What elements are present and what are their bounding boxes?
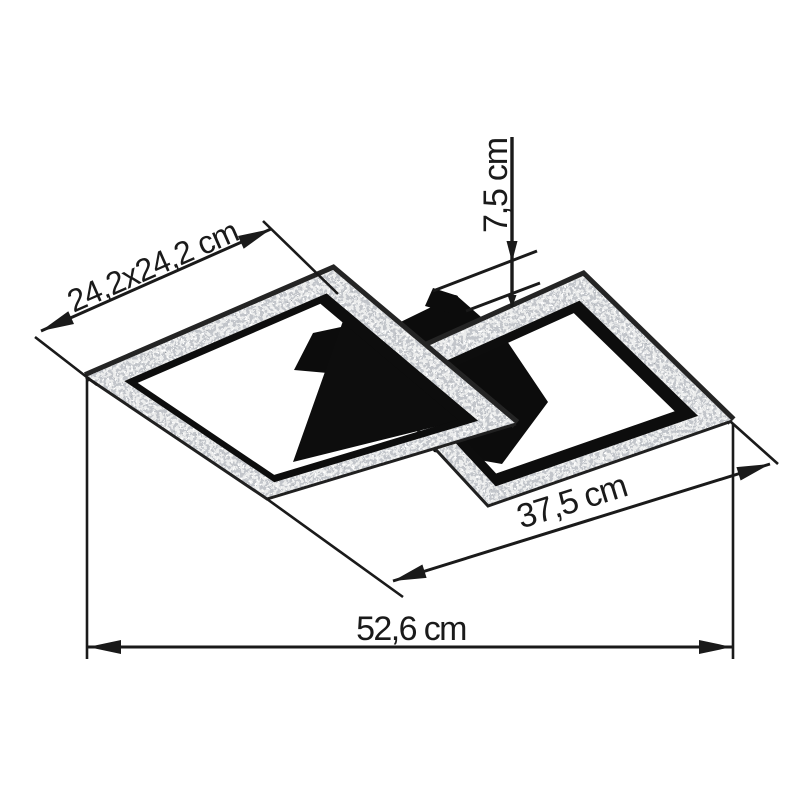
svg-text:7,5 cm: 7,5 cm: [477, 138, 515, 233]
svg-text:52,6 cm: 52,6 cm: [356, 610, 466, 648]
